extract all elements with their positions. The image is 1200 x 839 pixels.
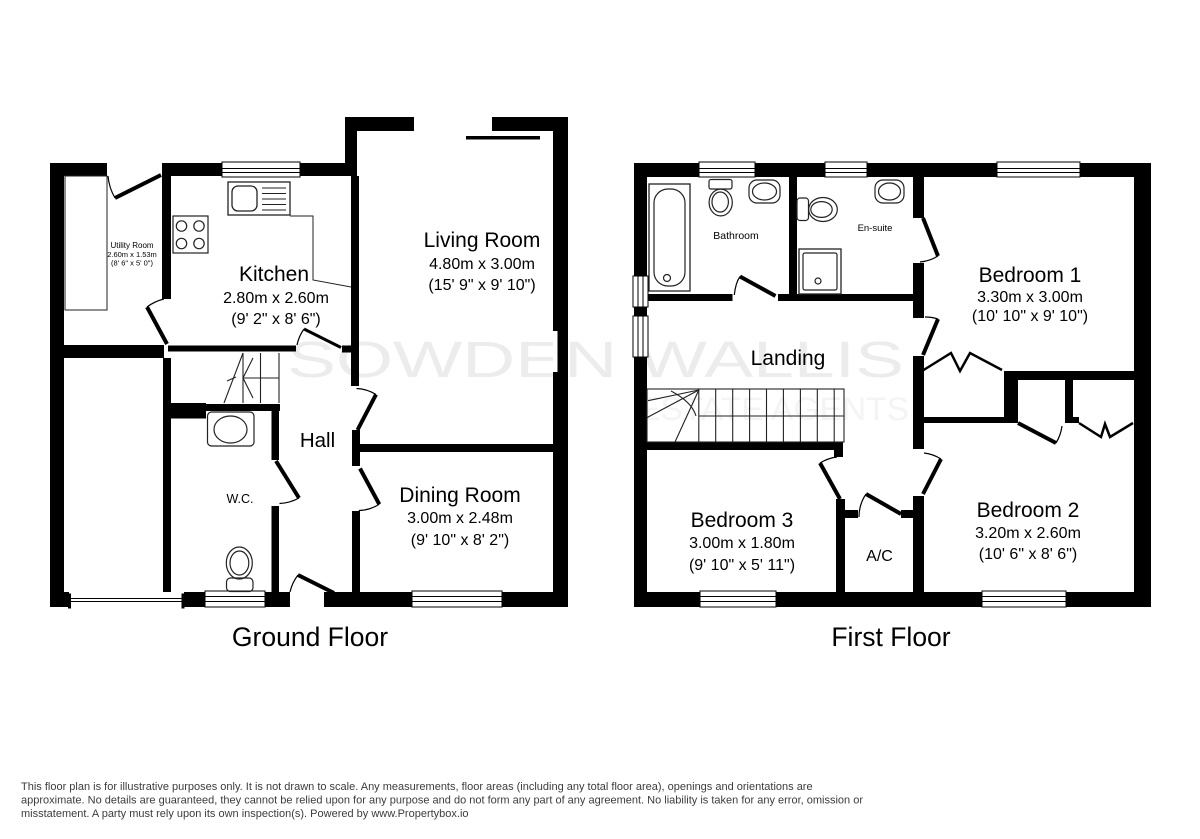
svg-text:(15' 9" x 9' 10"): (15' 9" x 9' 10") — [428, 277, 535, 294]
svg-text:Ground Floor: Ground Floor — [232, 622, 388, 652]
svg-text:En-suite: En-suite — [858, 223, 893, 234]
svg-text:approximate. No details are gu: approximate. No details are guaranteed, … — [21, 795, 863, 807]
svg-text:(9' 10" x 5' 11"): (9' 10" x 5' 11") — [689, 557, 795, 574]
svg-text:Bedroom 3: Bedroom 3 — [691, 509, 794, 532]
svg-text:Bedroom 2: Bedroom 2 — [977, 499, 1080, 522]
svg-text:(9' 2" x 8' 6"): (9' 2" x 8' 6") — [231, 311, 321, 328]
svg-text:Bedroom 1: Bedroom 1 — [979, 264, 1082, 287]
svg-text:3.20m x 2.60m: 3.20m x 2.60m — [975, 525, 1081, 542]
svg-text:4.80m x 3.00m: 4.80m x 3.00m — [429, 256, 535, 273]
svg-text:W.C.: W.C. — [226, 492, 253, 506]
svg-text:First Floor: First Floor — [831, 622, 950, 652]
svg-text:3.00m x 1.80m: 3.00m x 1.80m — [689, 535, 795, 552]
svg-text:(8' 6" x 5' 0"): (8' 6" x 5' 0") — [111, 259, 153, 268]
svg-text:Living Room: Living Room — [424, 229, 541, 252]
svg-text:3.30m x 3.00m: 3.30m x 3.00m — [977, 289, 1083, 306]
svg-text:(10' 10" x 9' 10"): (10' 10" x 9' 10") — [972, 308, 1088, 325]
svg-text:(9' 10" x 8' 2"): (9' 10" x 8' 2") — [411, 532, 509, 549]
svg-text:Hall: Hall — [300, 429, 335, 452]
svg-text:misstatement. A party must rel: misstatement. A party must rely upon its… — [21, 808, 469, 820]
svg-text:This floor plan is for illustr: This floor plan is for illustrative purp… — [21, 781, 813, 793]
svg-text:2.80m x 2.60m: 2.80m x 2.60m — [223, 290, 329, 307]
svg-text:(10' 6" x 8' 6"): (10' 6" x 8' 6") — [979, 546, 1077, 563]
svg-text:A/C: A/C — [866, 548, 893, 565]
svg-text:3.00m x 2.48m: 3.00m x 2.48m — [407, 510, 513, 527]
svg-text:ESTATE AGENTS: ESTATE AGENTS — [638, 391, 909, 427]
svg-text:Dining Room: Dining Room — [399, 484, 520, 507]
svg-text:Bathroom: Bathroom — [713, 230, 759, 242]
svg-text:Utility Room: Utility Room — [110, 241, 153, 250]
svg-text:Landing: Landing — [751, 347, 826, 370]
svg-text:Kitchen: Kitchen — [239, 263, 309, 286]
